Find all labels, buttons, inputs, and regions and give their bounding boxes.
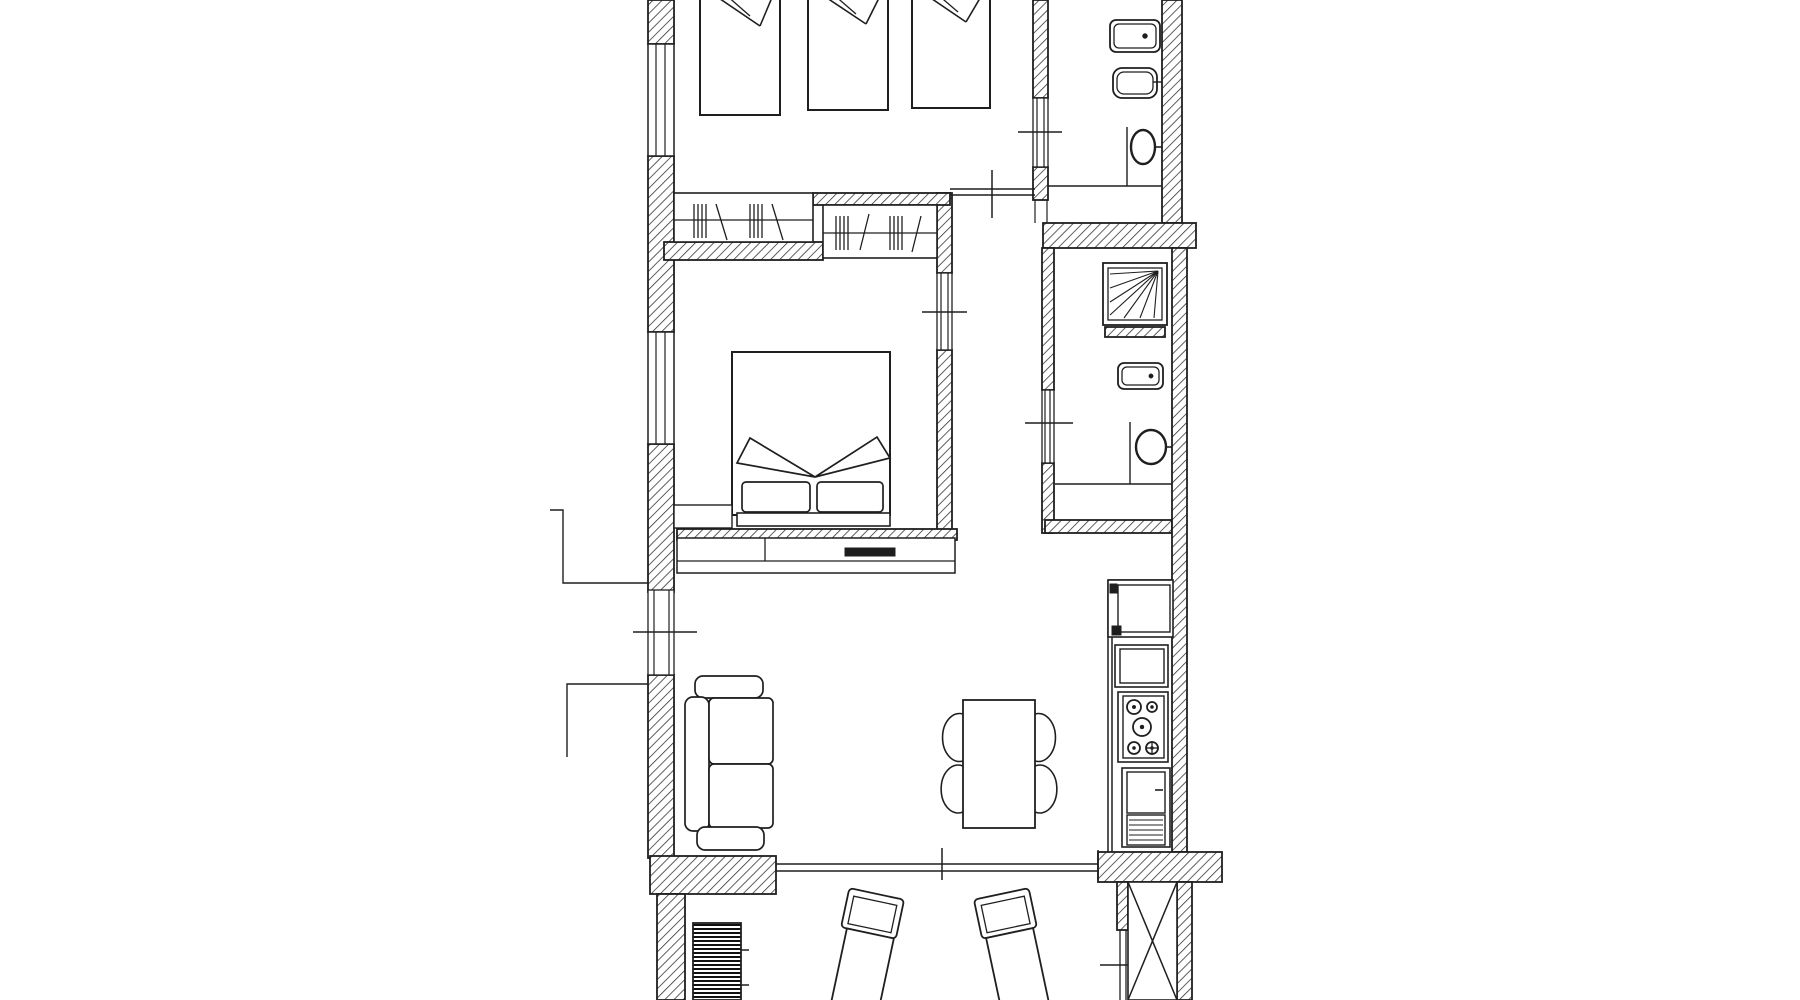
wall-shower-stub: [1105, 327, 1165, 337]
floor-plan: [0, 0, 1800, 1000]
single-bed-1: [700, 0, 780, 115]
wall-bed3-bath1-divider-b: [1033, 167, 1048, 200]
stove-burner-dot: [1132, 705, 1136, 709]
double-bed-headboard: [737, 513, 890, 526]
window-bedroom2: [648, 332, 674, 444]
sideboard: [677, 538, 955, 573]
dining-table: [963, 700, 1035, 828]
wall-kitchen-bottom-block: [1098, 852, 1222, 882]
single-bed-2: [808, 0, 888, 110]
wall-wardrobe-left-band: [664, 242, 823, 260]
wall-left-upper: [648, 0, 674, 44]
ac-unit: [693, 923, 741, 1000]
fridge-hinge: [1110, 584, 1117, 593]
stove-burner-dot: [1132, 746, 1135, 749]
double-bed-pillow: [817, 482, 883, 512]
floor-plan-page: [0, 0, 1800, 1000]
sofa-armrest-top: [695, 676, 763, 698]
sofa-cushion: [709, 698, 773, 764]
wall-bath1-right: [1162, 0, 1182, 223]
bath2-washbasin-drain: [1149, 374, 1153, 378]
wall-wardrobe-right-band: [813, 193, 950, 205]
wall-terrace-right-strip: [1117, 882, 1128, 930]
wall-terrace-left-block: [650, 856, 776, 894]
wall-bath1-bottom: [1043, 223, 1196, 248]
bedside-shelf: [674, 505, 732, 528]
wall-bath2-bottom: [1045, 520, 1172, 533]
wardrobe-bedroom3: [674, 193, 813, 242]
wall-right-main: [1172, 248, 1187, 852]
wall-left-4: [648, 675, 674, 858]
wall-bed3-bath1-divider-a: [1033, 0, 1048, 98]
wall-terrace-left: [657, 894, 685, 1000]
wall-left-3: [648, 444, 674, 592]
bath1-toilet: [1131, 130, 1155, 164]
sofa-backrest: [685, 697, 709, 831]
single-bed-3: [912, 0, 990, 108]
wall-bed2-right-b: [937, 350, 952, 540]
tv-unit: [845, 548, 895, 556]
sofa-cushion: [709, 764, 773, 828]
bathroom2-door-opening: [1042, 390, 1054, 463]
fridge-hinge: [1112, 626, 1121, 635]
paper-background: [0, 0, 1800, 1000]
bath2-toilet: [1136, 430, 1166, 464]
stove-burner-dot: [1140, 725, 1144, 729]
double-bed-pillow: [742, 482, 810, 512]
bath1-washbasin-drain: [1143, 34, 1148, 39]
wall-terrace-right: [1177, 882, 1192, 1000]
window-bedroom3: [648, 44, 674, 156]
kitchen-sink-unit: [1115, 645, 1168, 687]
sofa-armrest-bottom: [697, 827, 764, 850]
stove-burner-dot: [1150, 705, 1153, 708]
wall-bath2-left-a: [1042, 248, 1054, 390]
